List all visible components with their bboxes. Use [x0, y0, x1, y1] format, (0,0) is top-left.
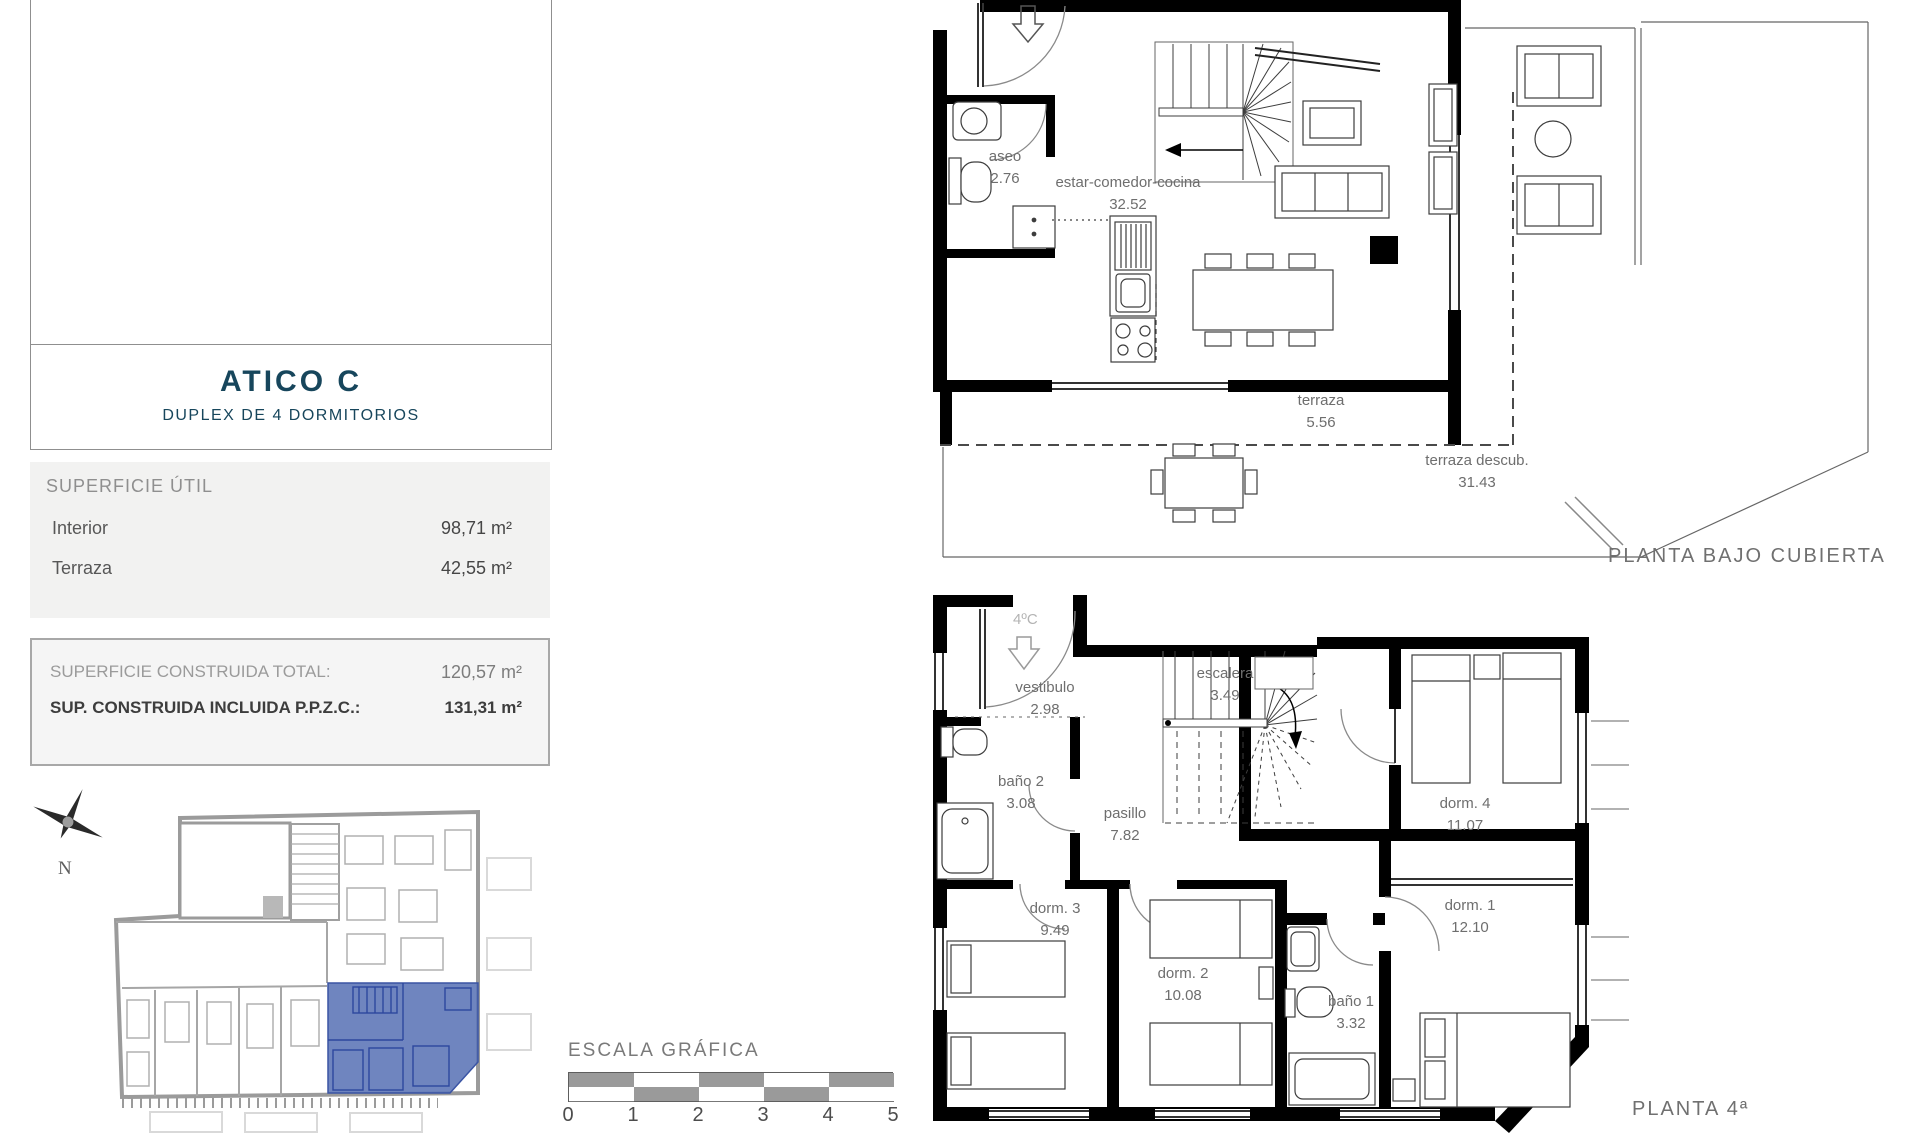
room-name: escalera: [1197, 663, 1254, 685]
upper-plan-drawing: [925, 0, 1885, 585]
entry-arrow-icon: [1009, 637, 1039, 669]
room-label-escalera: escalera 3.49: [1197, 663, 1254, 707]
bath2-fixtures: [937, 727, 993, 879]
closet: [1255, 657, 1313, 689]
room-name: dorm. 2: [1158, 963, 1209, 985]
room-name: baño 1: [1328, 991, 1374, 1013]
walls: [933, 0, 1461, 445]
entry-door: [984, 6, 1065, 86]
room-area: 2.98: [1015, 699, 1074, 721]
entry-unit-label: 4ºC: [1013, 611, 1038, 628]
room-label-pasillo: pasillo 7.82: [1104, 803, 1147, 847]
floorplan-sheet: ATICO C DUPLEX DE 4 DORMITORIOS SUPERFIC…: [0, 0, 1920, 1140]
room-label-estar: estar-comedor-cocina 32.52: [1055, 172, 1200, 216]
cover-image-placeholder: [30, 0, 552, 346]
room-area: 5.56: [1298, 412, 1345, 434]
dining-table: [1193, 254, 1333, 346]
graphic-scale-bar: [568, 1072, 893, 1102]
construida-total-row: SUPERFICIE CONSTRUIDA TOTAL: 120,57 m²: [50, 662, 522, 682]
room-area: 10.08: [1158, 985, 1209, 1007]
room-name: dorm. 3: [1030, 898, 1081, 920]
row-label: SUPERFICIE CONSTRUIDA TOTAL:: [50, 662, 331, 681]
lower-floor-plan: 4ºC vestibulo 2.98 escalera 3.49 baño 2 …: [925, 595, 1755, 1140]
scale-title: ESCALA GRÁFICA: [568, 1040, 760, 1062]
construida-ppzc-row: SUP. CONSTRUIDA INCLUIDA P.P.Z.C.: 131,3…: [50, 698, 522, 718]
room-label-dorm1: dorm. 1 12.10: [1445, 895, 1496, 939]
compass-north-letter: N: [58, 858, 72, 880]
room-name: baño 2: [998, 771, 1044, 793]
room-area: 7.82: [1104, 825, 1147, 847]
superficie-construida-panel: SUPERFICIE CONSTRUIDA TOTAL: 120,57 m² S…: [30, 638, 550, 766]
kitchen: [1052, 216, 1156, 362]
room-area: 9.49: [1030, 920, 1081, 942]
room-label-vestibulo: vestibulo 2.98: [1015, 677, 1074, 721]
terrace-boundary: [940, 22, 1868, 557]
row-value: 131,31 m²: [445, 698, 523, 718]
key-plan: [95, 800, 550, 1140]
room-area: 32.52: [1055, 194, 1200, 216]
scale-tick: 0: [556, 1104, 580, 1127]
room-name: estar-comedor-cocina: [1055, 172, 1200, 194]
room-name: terraza descub.: [1425, 450, 1528, 472]
highlighted-unit: [328, 983, 478, 1093]
scale-tick: 1: [621, 1104, 645, 1127]
room-label-dorm4: dorm. 4 11.07: [1440, 793, 1491, 837]
room-area: 3.08: [998, 793, 1044, 815]
page-subtitle: DUPLEX DE 4 DORMITORIOS: [31, 407, 551, 425]
room-label-terraza-descub: terraza descub. 31.43: [1425, 450, 1528, 494]
row-label: SUP. CONSTRUIDA INCLUIDA P.P.Z.C.:: [50, 698, 360, 717]
row-label: Terraza: [52, 558, 112, 578]
room-name: aseo: [989, 146, 1022, 168]
room-label-terraza: terraza 5.56: [1298, 390, 1345, 434]
room-area: 11.07: [1440, 815, 1491, 837]
room-label-aseo: aseo 2.76: [989, 146, 1022, 190]
scale-tick: 4: [816, 1104, 840, 1127]
room-area: 2.76: [989, 168, 1022, 190]
room-label-dorm2: dorm. 2 10.08: [1158, 963, 1209, 1007]
lower-plan-title: PLANTA 4ª: [1632, 1098, 1749, 1121]
superficie-util-panel: SUPERFICIE ÚTIL Interior 98,71 m² Terraz…: [30, 462, 550, 618]
superficie-util-heading: SUPERFICIE ÚTIL: [46, 476, 550, 497]
page-title: ATICO C: [31, 365, 551, 399]
room-area: 12.10: [1445, 917, 1496, 939]
room-label-dorm3: dorm. 3 9.49: [1030, 898, 1081, 942]
surface-row-interior: Interior 98,71 m²: [52, 518, 512, 539]
row-label: Interior: [52, 518, 108, 538]
upper-floor-plan: aseo 2.76 estar-comedor-cocina 32.52 ter…: [925, 0, 1885, 585]
upper-plan-title: PLANTA BAJO CUBIERTA: [1608, 545, 1886, 568]
window-sill-ticks: [1591, 721, 1629, 1020]
row-value: 120,57 m²: [441, 662, 522, 683]
room-area: 31.43: [1425, 472, 1528, 494]
scale-tick: 5: [881, 1104, 905, 1127]
room-label-bano1: baño 1 3.32: [1328, 991, 1374, 1035]
room-name: dorm. 4: [1440, 793, 1491, 815]
living-furniture: [1275, 84, 1457, 218]
room-area: 3.32: [1328, 1013, 1374, 1035]
room-label-bano2: baño 2 3.08: [998, 771, 1044, 815]
row-value: 98,71 m²: [441, 518, 512, 539]
room-name: pasillo: [1104, 803, 1147, 825]
unit-title-box: ATICO C DUPLEX DE 4 DORMITORIOS: [30, 344, 552, 450]
staircase: [1155, 42, 1293, 182]
room-name: terraza: [1298, 390, 1345, 412]
room-name: dorm. 1: [1445, 895, 1496, 917]
surface-row-terraza: Terraza 42,55 m²: [52, 558, 512, 579]
row-value: 42,55 m²: [441, 558, 512, 579]
scale-tick: 3: [751, 1104, 775, 1127]
scale-tick: 2: [686, 1104, 710, 1127]
room-area: 3.49: [1197, 685, 1254, 707]
room-name: vestibulo: [1015, 677, 1074, 699]
